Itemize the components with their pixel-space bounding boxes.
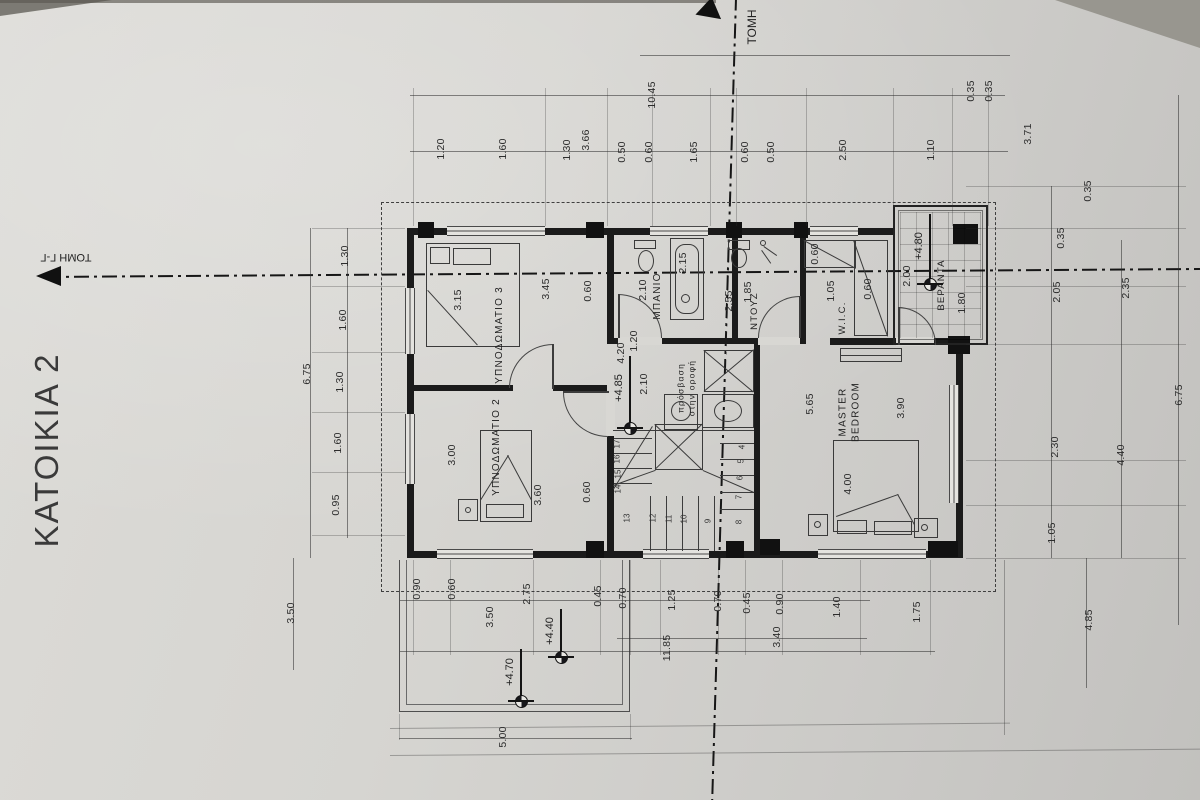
dimension-label: 4.00 <box>842 473 854 494</box>
photographed-floor-plan-sheet: ΤΟΜΗ ΤΟΜΗ Γ-Γ ΚΑΤΟΙΚΙΑ 2 10.451.201.601.… <box>0 0 1200 800</box>
dimension-label: 0.90 <box>411 578 423 599</box>
dimension-label: 3.40 <box>771 626 783 647</box>
stair-step-number: 11 <box>665 515 674 523</box>
dimension-label: 2.35 <box>1120 277 1132 298</box>
dimension-label: 3.60 <box>532 484 544 505</box>
dimension-label: 1.60 <box>497 138 509 159</box>
room-label: ΥΠΝΟΔΩΜΑΤΙΟ 3 <box>494 286 507 384</box>
dimension-label: 1.30 <box>334 371 346 392</box>
dimension-label: 6.75 <box>1173 384 1185 405</box>
dimension-label: 3.66 <box>580 129 592 150</box>
dimension-label: 0.60 <box>809 243 821 264</box>
level-marker-crosshair <box>548 656 574 657</box>
stair-step-number: 10 <box>680 515 689 524</box>
dimension-label: 4.20 <box>615 342 627 363</box>
level-marker-crosshair <box>917 283 943 284</box>
level-marker-crosshair <box>508 700 534 701</box>
dimension-label: 1.60 <box>332 432 344 453</box>
dimension-label: 2.05 <box>1051 281 1063 302</box>
dimension-label: 3.15 <box>452 289 464 310</box>
dimension-label: 3.45 <box>540 278 552 299</box>
dimension-label: 5.65 <box>804 393 816 414</box>
level-leader-line <box>560 609 562 657</box>
dimension-label: 0.35 <box>1082 180 1094 201</box>
dimension-label: 0.50 <box>765 141 777 162</box>
stair-step-number: 6 <box>736 476 745 480</box>
level-value: +4.80 <box>913 232 925 260</box>
dimension-label: 0.60 <box>446 578 458 599</box>
dimension-label: 1.25 <box>666 589 678 610</box>
dimension-label: 0.60 <box>739 141 751 162</box>
dimension-label: 0.60 <box>581 481 593 502</box>
stair-step-number: 4 <box>738 445 747 449</box>
dimension-label: 1.30 <box>561 139 573 160</box>
dimension-label: 5.00 <box>497 726 509 747</box>
dimension-label: 3.90 <box>895 397 907 418</box>
dimension-label: 3.50 <box>484 606 496 627</box>
dimension-label: 1.60 <box>337 309 349 330</box>
stair-step-number: 5 <box>737 459 746 463</box>
dimension-label: 2.75 <box>521 583 533 604</box>
dimension-label: 4.40 <box>1115 444 1127 465</box>
dimension-label: 2.00 <box>901 265 913 286</box>
dimension-layer: 10.451.201.601.303.660.500.601.650.600.5… <box>0 0 1200 800</box>
dimension-label: 10.45 <box>646 81 658 108</box>
dimension-label: 0.95 <box>330 494 342 515</box>
dimension-label: 1.65 <box>688 141 700 162</box>
dimension-label: 6.75 <box>301 363 313 384</box>
dimension-label: 0.60 <box>643 141 655 162</box>
level-value: +4.40 <box>544 617 556 645</box>
stair-step-number: 15 <box>614 470 623 479</box>
stair-step-number: 12 <box>649 514 658 523</box>
stair-step-number: 7 <box>735 495 744 499</box>
dimension-label: 1.05 <box>825 280 837 301</box>
dimension-label: 1.20 <box>435 138 447 159</box>
dimension-label: 0.45 <box>592 585 604 606</box>
dimension-label: 2.55 <box>723 290 735 311</box>
level-leader-line <box>929 214 931 284</box>
stair-step-number: 14 <box>614 485 623 494</box>
dimension-label: 3.50 <box>285 602 297 623</box>
dimension-label: 2.15 <box>677 252 689 273</box>
dimension-label: 0.90 <box>774 593 786 614</box>
level-value: +4.70 <box>504 658 516 686</box>
dimension-label: 1.80 <box>956 292 968 313</box>
stair-step-number: 8 <box>735 520 744 524</box>
dimension-label: 2.10 <box>638 373 650 394</box>
stair-step-number: 9 <box>704 519 713 523</box>
level-leader-line <box>520 649 522 701</box>
dimension-label: 0.70 <box>617 587 629 608</box>
dimension-label: 1.20 <box>628 330 640 351</box>
room-label: ΜΠΑΝΙΟ <box>652 272 665 319</box>
room-label: πρόσβαση στην οροφή <box>675 360 696 416</box>
dimension-label: 0.70 <box>712 590 724 611</box>
level-leader-line <box>629 356 631 428</box>
dimension-label: 1.75 <box>911 601 923 622</box>
dimension-label: 0.60 <box>582 280 594 301</box>
dimension-label: 1.40 <box>831 596 843 617</box>
room-label: ΒΕΡΑΝΤΑ <box>936 259 948 310</box>
dimension-label: 0.45 <box>741 592 753 613</box>
dimension-label: 2.30 <box>1049 436 1061 457</box>
dimension-label: 2.50 <box>837 139 849 160</box>
room-label: ΥΠΝΟΔΩΜΑΤΙΟ 2 <box>491 398 504 496</box>
stair-step-number: 13 <box>623 514 632 523</box>
level-marker-crosshair <box>617 427 643 428</box>
dimension-label: 3.71 <box>1022 123 1034 144</box>
dimension-label: 0.60 <box>862 278 874 299</box>
dimension-label: 4.85 <box>1083 609 1095 630</box>
level-value: +4.85 <box>613 374 625 402</box>
dimension-label: 2.10 <box>637 279 649 300</box>
dimension-label: 1.05 <box>1046 522 1058 543</box>
room-label: ΝΤΟΥΖ <box>749 292 761 330</box>
dimension-label: 0.35 <box>1055 227 1067 248</box>
stair-step-number: 16 <box>613 455 622 464</box>
dimension-label: 11.85 <box>661 635 673 662</box>
dimension-label: 3.00 <box>446 444 458 465</box>
dimension-label: 1.30 <box>339 245 351 266</box>
dimension-label: 0.35 <box>965 80 977 101</box>
dimension-label: 0.35 <box>983 80 995 101</box>
stair-step-number: 17 <box>613 440 622 449</box>
room-label: W.I.C. <box>837 301 849 334</box>
dimension-label: 0.50 <box>616 141 628 162</box>
dimension-label: 1.10 <box>925 139 937 160</box>
room-label: MASTER BEDROOM <box>838 382 863 442</box>
